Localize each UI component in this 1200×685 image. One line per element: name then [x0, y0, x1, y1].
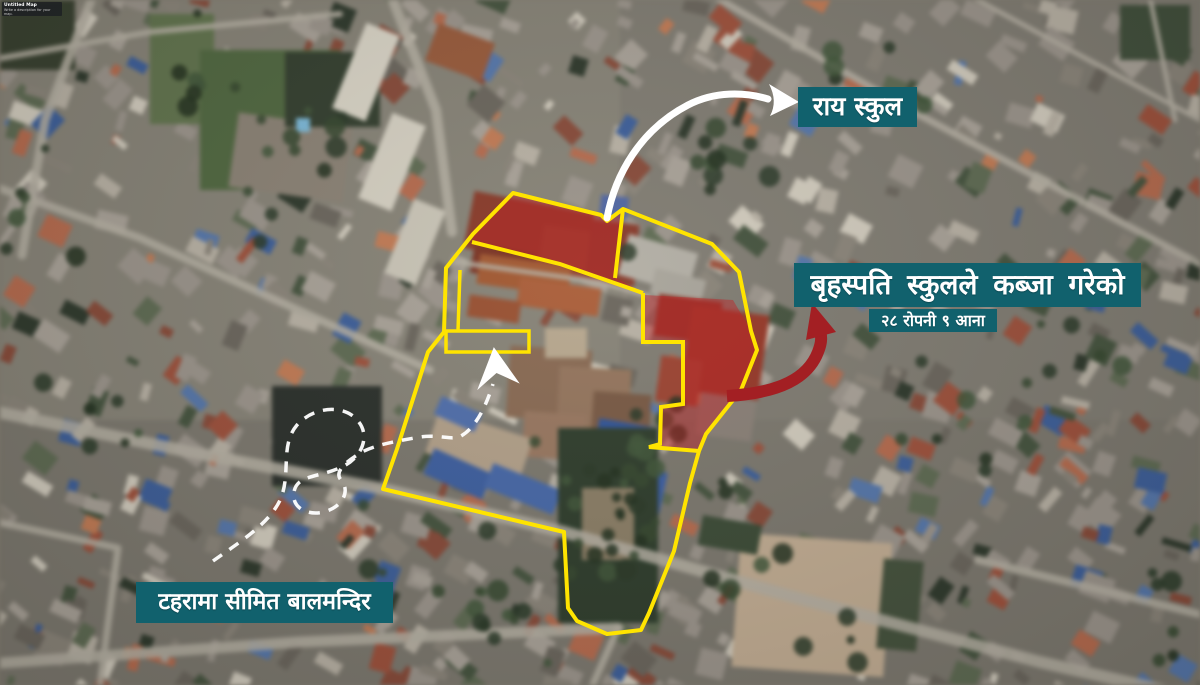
annotated-satellite-map: राय स्कुल बृहस्पति स्कुलले कब्जा गरेको २…: [0, 0, 1200, 685]
boundary-inner-division-left: [446, 270, 529, 352]
balmandir-dashed-path: [213, 384, 493, 561]
watermark-subtitle: Write a description for your map.: [4, 8, 60, 16]
occupied-arrow-head: [806, 303, 836, 340]
occupied-by-school-label: बृहस्पति स्कुलले कब्जा गरेको: [794, 263, 1141, 307]
occupied-area-size-label: २८ रोपनी ९ आना: [869, 309, 997, 332]
rai-school-arrow-shaft: [607, 94, 768, 218]
rai-school-label: राय स्कुल: [798, 87, 917, 127]
rai-school-arrow-head: [769, 84, 799, 116]
balmandir-shed-label: टहरामा सीमित बालमन्दिर: [136, 582, 393, 623]
map-watermark: Untitled Map Write a description for you…: [2, 2, 62, 16]
